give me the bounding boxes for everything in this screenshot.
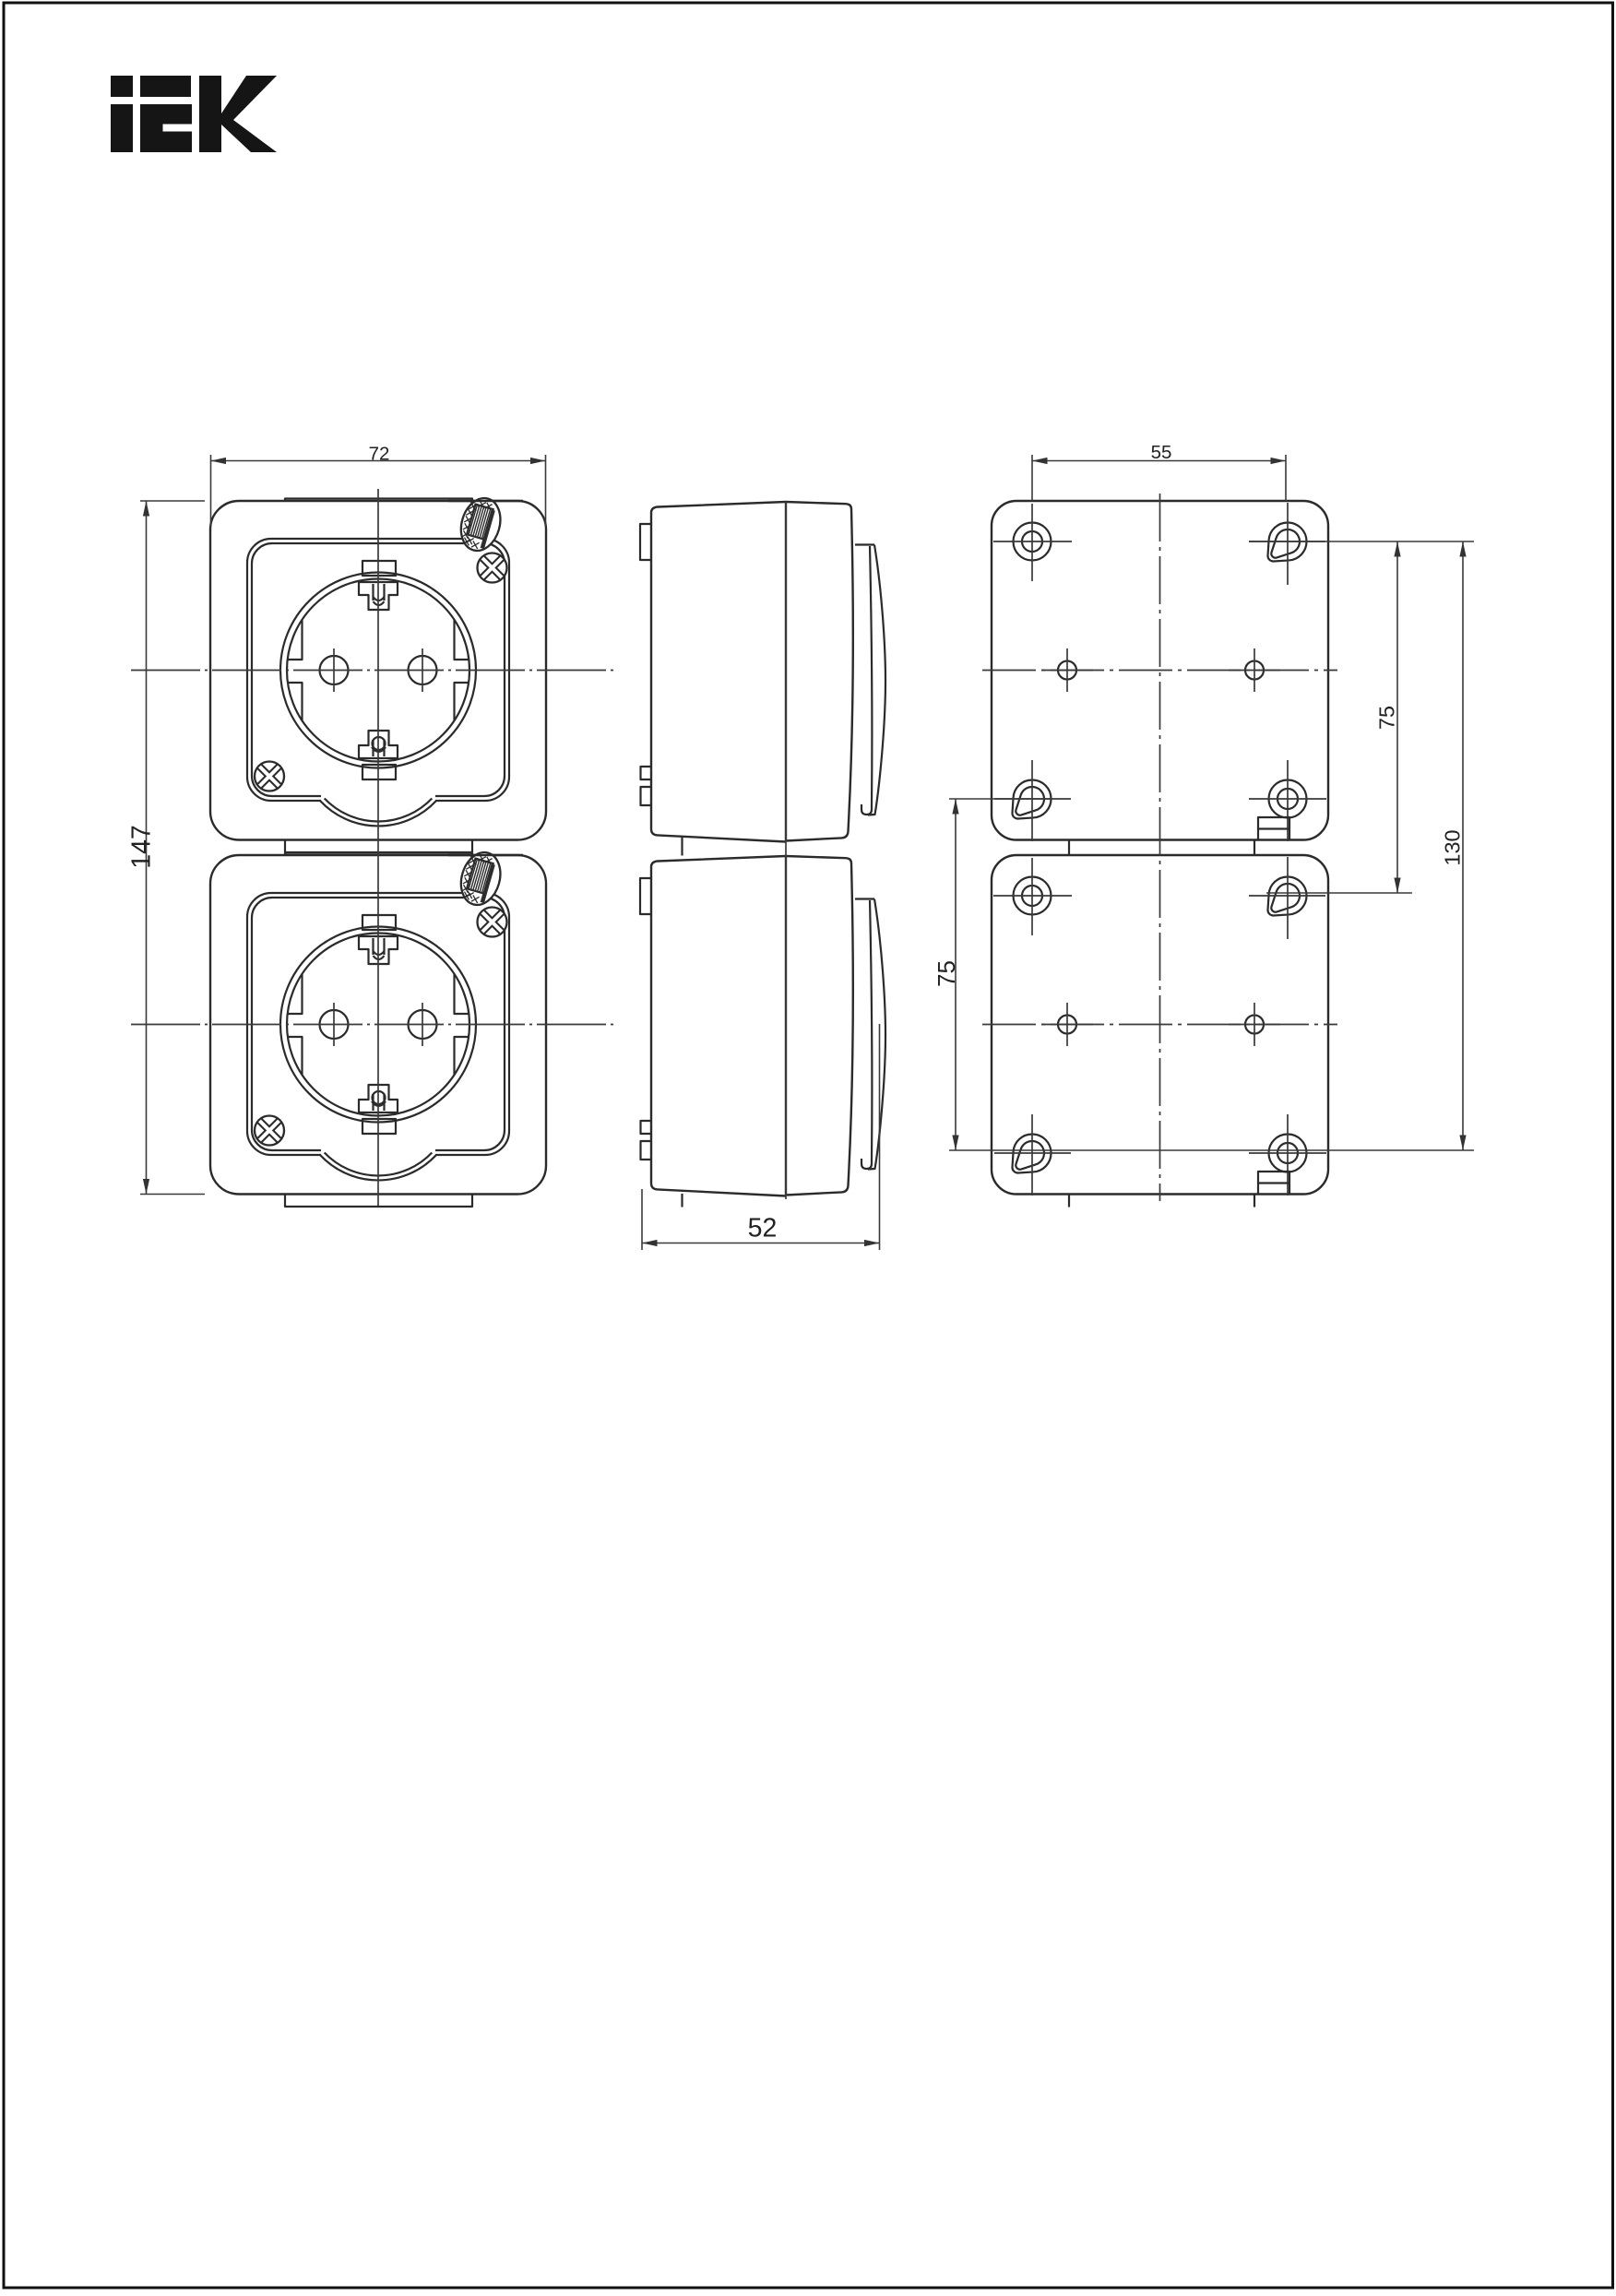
svg-text:75: 75 bbox=[933, 960, 960, 987]
svg-text:147: 147 bbox=[127, 825, 157, 869]
svg-text:130: 130 bbox=[1441, 829, 1465, 865]
svg-text:52: 52 bbox=[748, 1214, 778, 1243]
svg-text:55: 55 bbox=[1151, 442, 1172, 463]
svg-text:72: 72 bbox=[369, 444, 390, 465]
svg-text:75: 75 bbox=[1375, 706, 1399, 730]
